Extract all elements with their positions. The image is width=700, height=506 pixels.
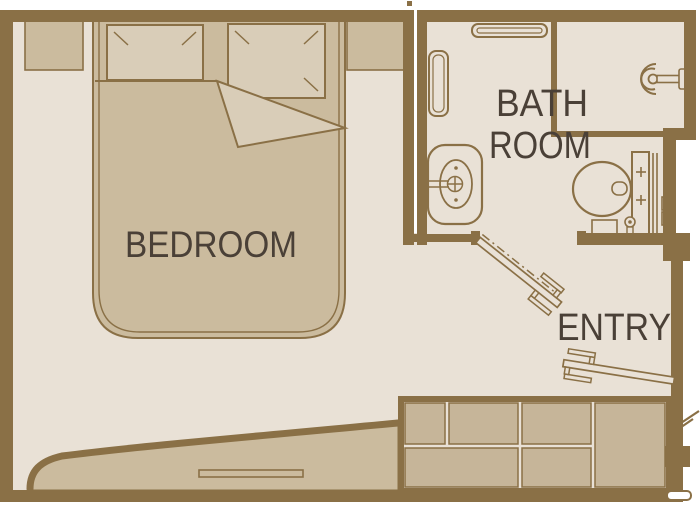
pillow-right <box>228 24 325 98</box>
bedroom-label: BEDROOM <box>125 224 297 265</box>
wardrobe-compartment <box>522 403 591 444</box>
wardrobe-compartment <box>405 403 445 444</box>
wall-shower-right <box>684 10 696 140</box>
wall-bathroom-top <box>419 10 696 22</box>
wall-toilet-right <box>663 128 676 245</box>
flush-knob-dot <box>628 220 632 224</box>
basin-dot <box>454 166 458 170</box>
wall-door-jamb <box>577 231 586 245</box>
wardrobe-compartment <box>595 403 665 487</box>
wall-bottom <box>0 490 678 502</box>
bathroom-label-line1: BATH <box>496 83 588 125</box>
wardrobe-compartment <box>522 448 591 487</box>
door-handle <box>589 357 595 365</box>
wall-left <box>0 10 13 502</box>
wall-bedroom-right <box>403 10 414 245</box>
wall-gap-dot <box>407 1 412 6</box>
wall-shelf <box>472 24 547 37</box>
wardrobe <box>398 396 683 502</box>
double-bed <box>93 14 345 338</box>
wardrobe-compartment <box>449 403 518 444</box>
entry-label: ENTRY <box>557 307 671 349</box>
pillow-left <box>107 25 203 80</box>
wall-cabinet <box>429 51 448 116</box>
wall-bath-bottom-right <box>577 233 676 245</box>
wardrobe-compartment <box>405 448 518 487</box>
toilet-bowl <box>573 162 631 216</box>
wall-bedroom-top <box>0 10 403 22</box>
wall-bathroom-left <box>417 10 427 245</box>
shower-knob <box>649 75 658 84</box>
floor-plan-drawing: BEDROOM BATH ROOM ENTRY <box>0 0 700 506</box>
door-handle <box>564 367 570 375</box>
bathroom-label-line2: ROOM <box>489 125 591 167</box>
floor-plan: BEDROOM BATH ROOM ENTRY <box>0 0 700 506</box>
basin-dot <box>454 198 458 202</box>
passage-floor <box>403 245 414 396</box>
doorway-floor <box>477 228 577 244</box>
wall-entry-jamb <box>665 446 690 467</box>
wash-basin <box>428 145 482 224</box>
wall-bath-bottom-left <box>403 234 477 242</box>
threshold-handle <box>667 491 691 500</box>
toilet-base <box>592 220 617 234</box>
